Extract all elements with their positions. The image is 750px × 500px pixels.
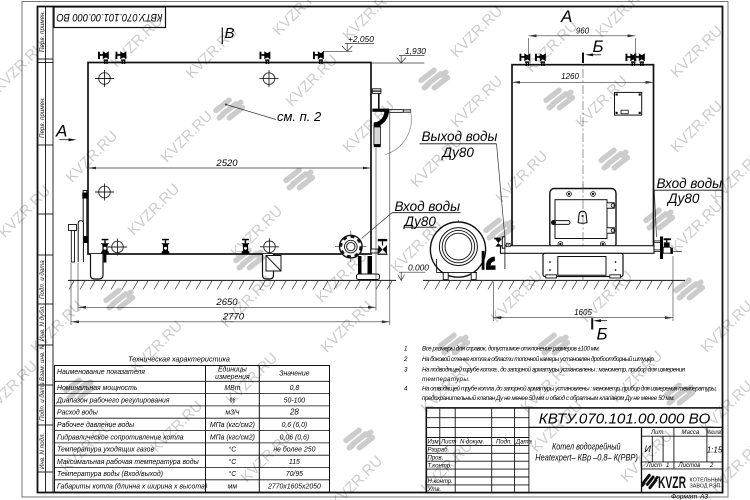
svg-text:Разраб.: Разраб. (428, 448, 450, 454)
svg-text:Формат: Формат (671, 493, 698, 500)
svg-text:Котел водогрейный: Котел водогрейный (552, 442, 621, 452)
svg-text:Расход воды: Расход воды (57, 409, 98, 417)
svg-text:1:15: 1:15 (707, 446, 723, 455)
svg-text:2: 2 (709, 463, 714, 469)
svg-text:Heatexpert– КВр –0,8– К(РВР): Heatexpert– КВр –0,8– К(РВР) (535, 453, 638, 463)
svg-text:см. п. 2: см. п. 2 (277, 109, 322, 124)
svg-text:2520: 2520 (215, 158, 238, 169)
svg-text:1260: 1260 (561, 72, 579, 81)
svg-text:Изм.: Изм. (428, 440, 441, 446)
svg-text:Единицы: Единицы (218, 366, 247, 374)
svg-text:0,6 (6,0): 0,6 (6,0) (282, 422, 308, 429)
svg-text:Значение: Значение (279, 371, 309, 378)
svg-text:Инв. N подл.: Инв. N подл. (39, 433, 46, 469)
svg-text:2: 2 (403, 356, 408, 363)
svg-text:А: А (55, 122, 67, 141)
svg-text:А3: А3 (699, 493, 708, 500)
svg-text:50-100: 50-100 (284, 397, 306, 404)
svg-text:Б: Б (597, 325, 608, 344)
svg-text:1: 1 (666, 463, 669, 469)
svg-text:KVZR: KVZR (658, 474, 686, 492)
svg-text:МПа (кгс/см2): МПа (кгс/см2) (210, 434, 255, 441)
svg-text:Габариты котла (длинна х ширин: Габариты котла (длинна х ширина х высота… (57, 483, 207, 491)
svg-text:Масса: Масса (682, 430, 700, 436)
svg-text:0,8: 0,8 (290, 385, 300, 392)
svg-text:115: 115 (289, 459, 300, 466)
svg-text:3: 3 (404, 367, 408, 374)
svg-text:Подп.: Подп. (496, 440, 512, 446)
svg-text:мм: мм (228, 484, 238, 491)
svg-text:Вход воды: Вход воды (395, 199, 461, 214)
svg-text:2770х1605х2050: 2770х1605х2050 (267, 484, 321, 491)
svg-text:Подп. и дата: Подп. и дата (39, 260, 46, 299)
svg-text:70/95: 70/95 (286, 471, 303, 478)
svg-text:Лист: Лист (440, 440, 456, 446)
svg-text:Листов: Листов (678, 463, 701, 469)
svg-text:Наименование показателя: Наименование показателя (57, 369, 145, 376)
svg-text:МПа (кгс/см2): МПа (кгс/см2) (210, 422, 255, 429)
svg-text:1: 1 (404, 346, 407, 353)
svg-text:°С: °С (229, 458, 238, 466)
svg-text:4: 4 (404, 386, 408, 393)
svg-text:Подп. и дата: Подп. и дата (39, 382, 46, 421)
svg-text:м3/ч: м3/ч (225, 410, 239, 417)
svg-text:°С: °С (229, 470, 238, 478)
svg-text:28: 28 (289, 408, 299, 417)
svg-text:На боковой стенке котла в обла: На боковой стенке котла в области топочн… (422, 356, 655, 363)
svg-text:Ду80: Ду80 (666, 191, 700, 206)
svg-text:°С: °С (229, 446, 238, 454)
svg-text:1,930: 1,930 (405, 46, 426, 56)
svg-text:Перв. примен.: Перв. примен. (39, 97, 46, 138)
